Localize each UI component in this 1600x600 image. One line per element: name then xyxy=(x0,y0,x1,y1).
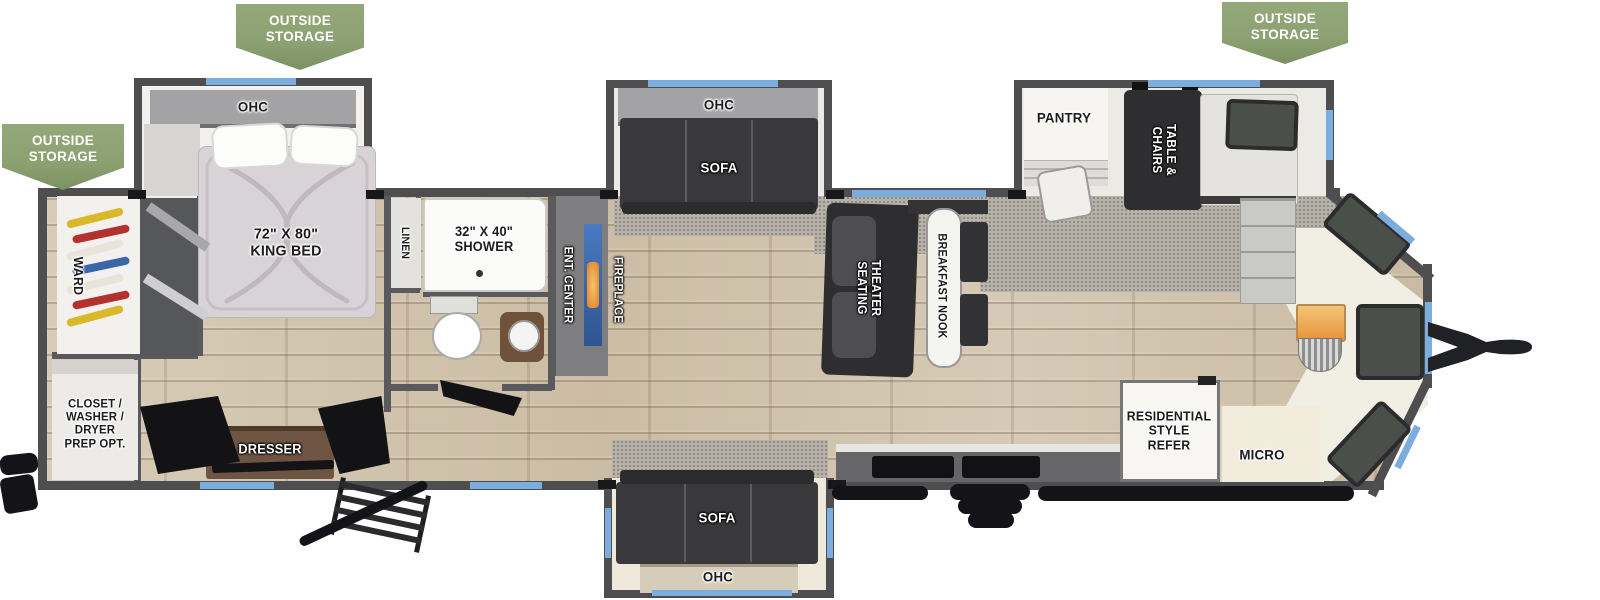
wall-linen xyxy=(388,288,420,293)
slide-latch-icon xyxy=(366,190,384,199)
bedroom-ohc-label: OHC xyxy=(238,99,268,114)
window-icon xyxy=(1356,304,1424,380)
window-strip xyxy=(648,80,778,87)
pillow xyxy=(289,124,359,168)
entry-steps xyxy=(968,512,1014,528)
nook-bench xyxy=(960,222,988,282)
sofa-cushion-line xyxy=(684,484,686,562)
sofa-cushion-line xyxy=(685,120,687,208)
dresser-label: DRESSER xyxy=(238,443,301,458)
micro-counter xyxy=(1220,406,1324,482)
dinette-chair xyxy=(1036,164,1094,224)
window-strip xyxy=(206,78,296,85)
shower-label: 32" X 40" SHOWER xyxy=(455,225,514,255)
window-strip xyxy=(852,190,986,197)
slide-latch-icon xyxy=(826,190,844,199)
rear-bumper xyxy=(0,452,39,476)
refrigerator-label: RESIDENTIAL STYLE REFER xyxy=(1127,410,1211,453)
rv-floorplan: OUTSIDE STORAGE OUTSIDE STORAGE OUTSIDE … xyxy=(0,0,1600,600)
table-chairs-label: TABLE & CHAIRS xyxy=(1149,124,1177,176)
slide-latch-icon xyxy=(600,190,618,199)
breakfast-nook-label: BREAKFAST NOOK xyxy=(935,233,948,338)
window-strip xyxy=(827,508,833,558)
outside-storage-badge: OUTSIDE STORAGE xyxy=(2,124,124,190)
nook-bench xyxy=(960,294,988,346)
slide-latch-icon xyxy=(598,480,616,489)
sofa-cushion-line xyxy=(750,484,752,562)
toilet xyxy=(432,312,482,360)
shower-drain xyxy=(476,270,483,277)
window-strip xyxy=(1326,110,1333,160)
window-strip xyxy=(652,590,792,596)
ent-center-label: ENT. CENTER xyxy=(561,247,574,324)
outside-storage-label: OUTSIDE STORAGE xyxy=(29,133,98,165)
outside-storage-badge: OUTSIDE STORAGE xyxy=(236,4,364,70)
outside-storage-label: OUTSIDE STORAGE xyxy=(266,13,335,45)
sofa-cushion-line xyxy=(751,120,753,208)
ward-label: WARD xyxy=(71,257,85,296)
sofa-label-top: SOFA xyxy=(701,160,738,175)
awning-rail xyxy=(1038,486,1354,501)
fireplace-flame-icon xyxy=(587,262,599,308)
pillow xyxy=(211,122,289,170)
kitchen-sink xyxy=(872,456,954,478)
bedroom-slide-wall xyxy=(144,124,200,196)
closet-shelf xyxy=(52,360,138,374)
micro-label: MICRO xyxy=(1239,447,1284,462)
wall-rear xyxy=(38,188,47,490)
kitchen-sink xyxy=(962,456,1040,478)
window-icon xyxy=(1225,99,1299,151)
living-ohc-label-top: OHC xyxy=(704,97,734,112)
slide-latch-icon xyxy=(1132,82,1148,90)
living-ohc-label-bottom: OHC xyxy=(703,569,733,584)
window-strip xyxy=(470,482,542,489)
theater-seating-label: THEATER SEATING xyxy=(854,260,882,317)
hitch-icon xyxy=(1428,314,1534,382)
stove xyxy=(1296,304,1346,342)
wall-bedroom-divider xyxy=(384,196,391,412)
window-strip xyxy=(200,482,274,489)
awning-rail xyxy=(832,486,928,500)
wall-bath-bottom xyxy=(384,384,438,391)
king-bed-label: 72" X 80" KING BED xyxy=(250,227,321,260)
kitchen-cabinet xyxy=(1240,198,1296,304)
window-strip xyxy=(605,508,611,558)
window-strip xyxy=(1148,80,1260,87)
slide-latch-icon xyxy=(1008,190,1026,199)
fireplace-label: FIREPLACE xyxy=(611,257,624,323)
slide-latch-icon xyxy=(128,190,146,199)
bath-sink xyxy=(508,320,540,352)
pantry-label: PANTRY xyxy=(1037,110,1091,125)
outside-storage-badge: OUTSIDE STORAGE xyxy=(1222,2,1348,64)
refrigerator-handle xyxy=(1198,376,1216,385)
sofa-seat-edge xyxy=(620,470,814,484)
sofa-label-bottom: SOFA xyxy=(699,510,736,525)
sofa-seat-edge xyxy=(622,202,816,214)
outside-storage-label: OUTSIDE STORAGE xyxy=(1251,11,1320,43)
wall-bath-bottom xyxy=(502,384,552,391)
linen-label: LINEN xyxy=(399,227,411,259)
closet-washer-dryer-label: CLOSET / WASHER / DRYER PREP OPT. xyxy=(64,398,125,451)
rear-bumper xyxy=(0,473,39,514)
